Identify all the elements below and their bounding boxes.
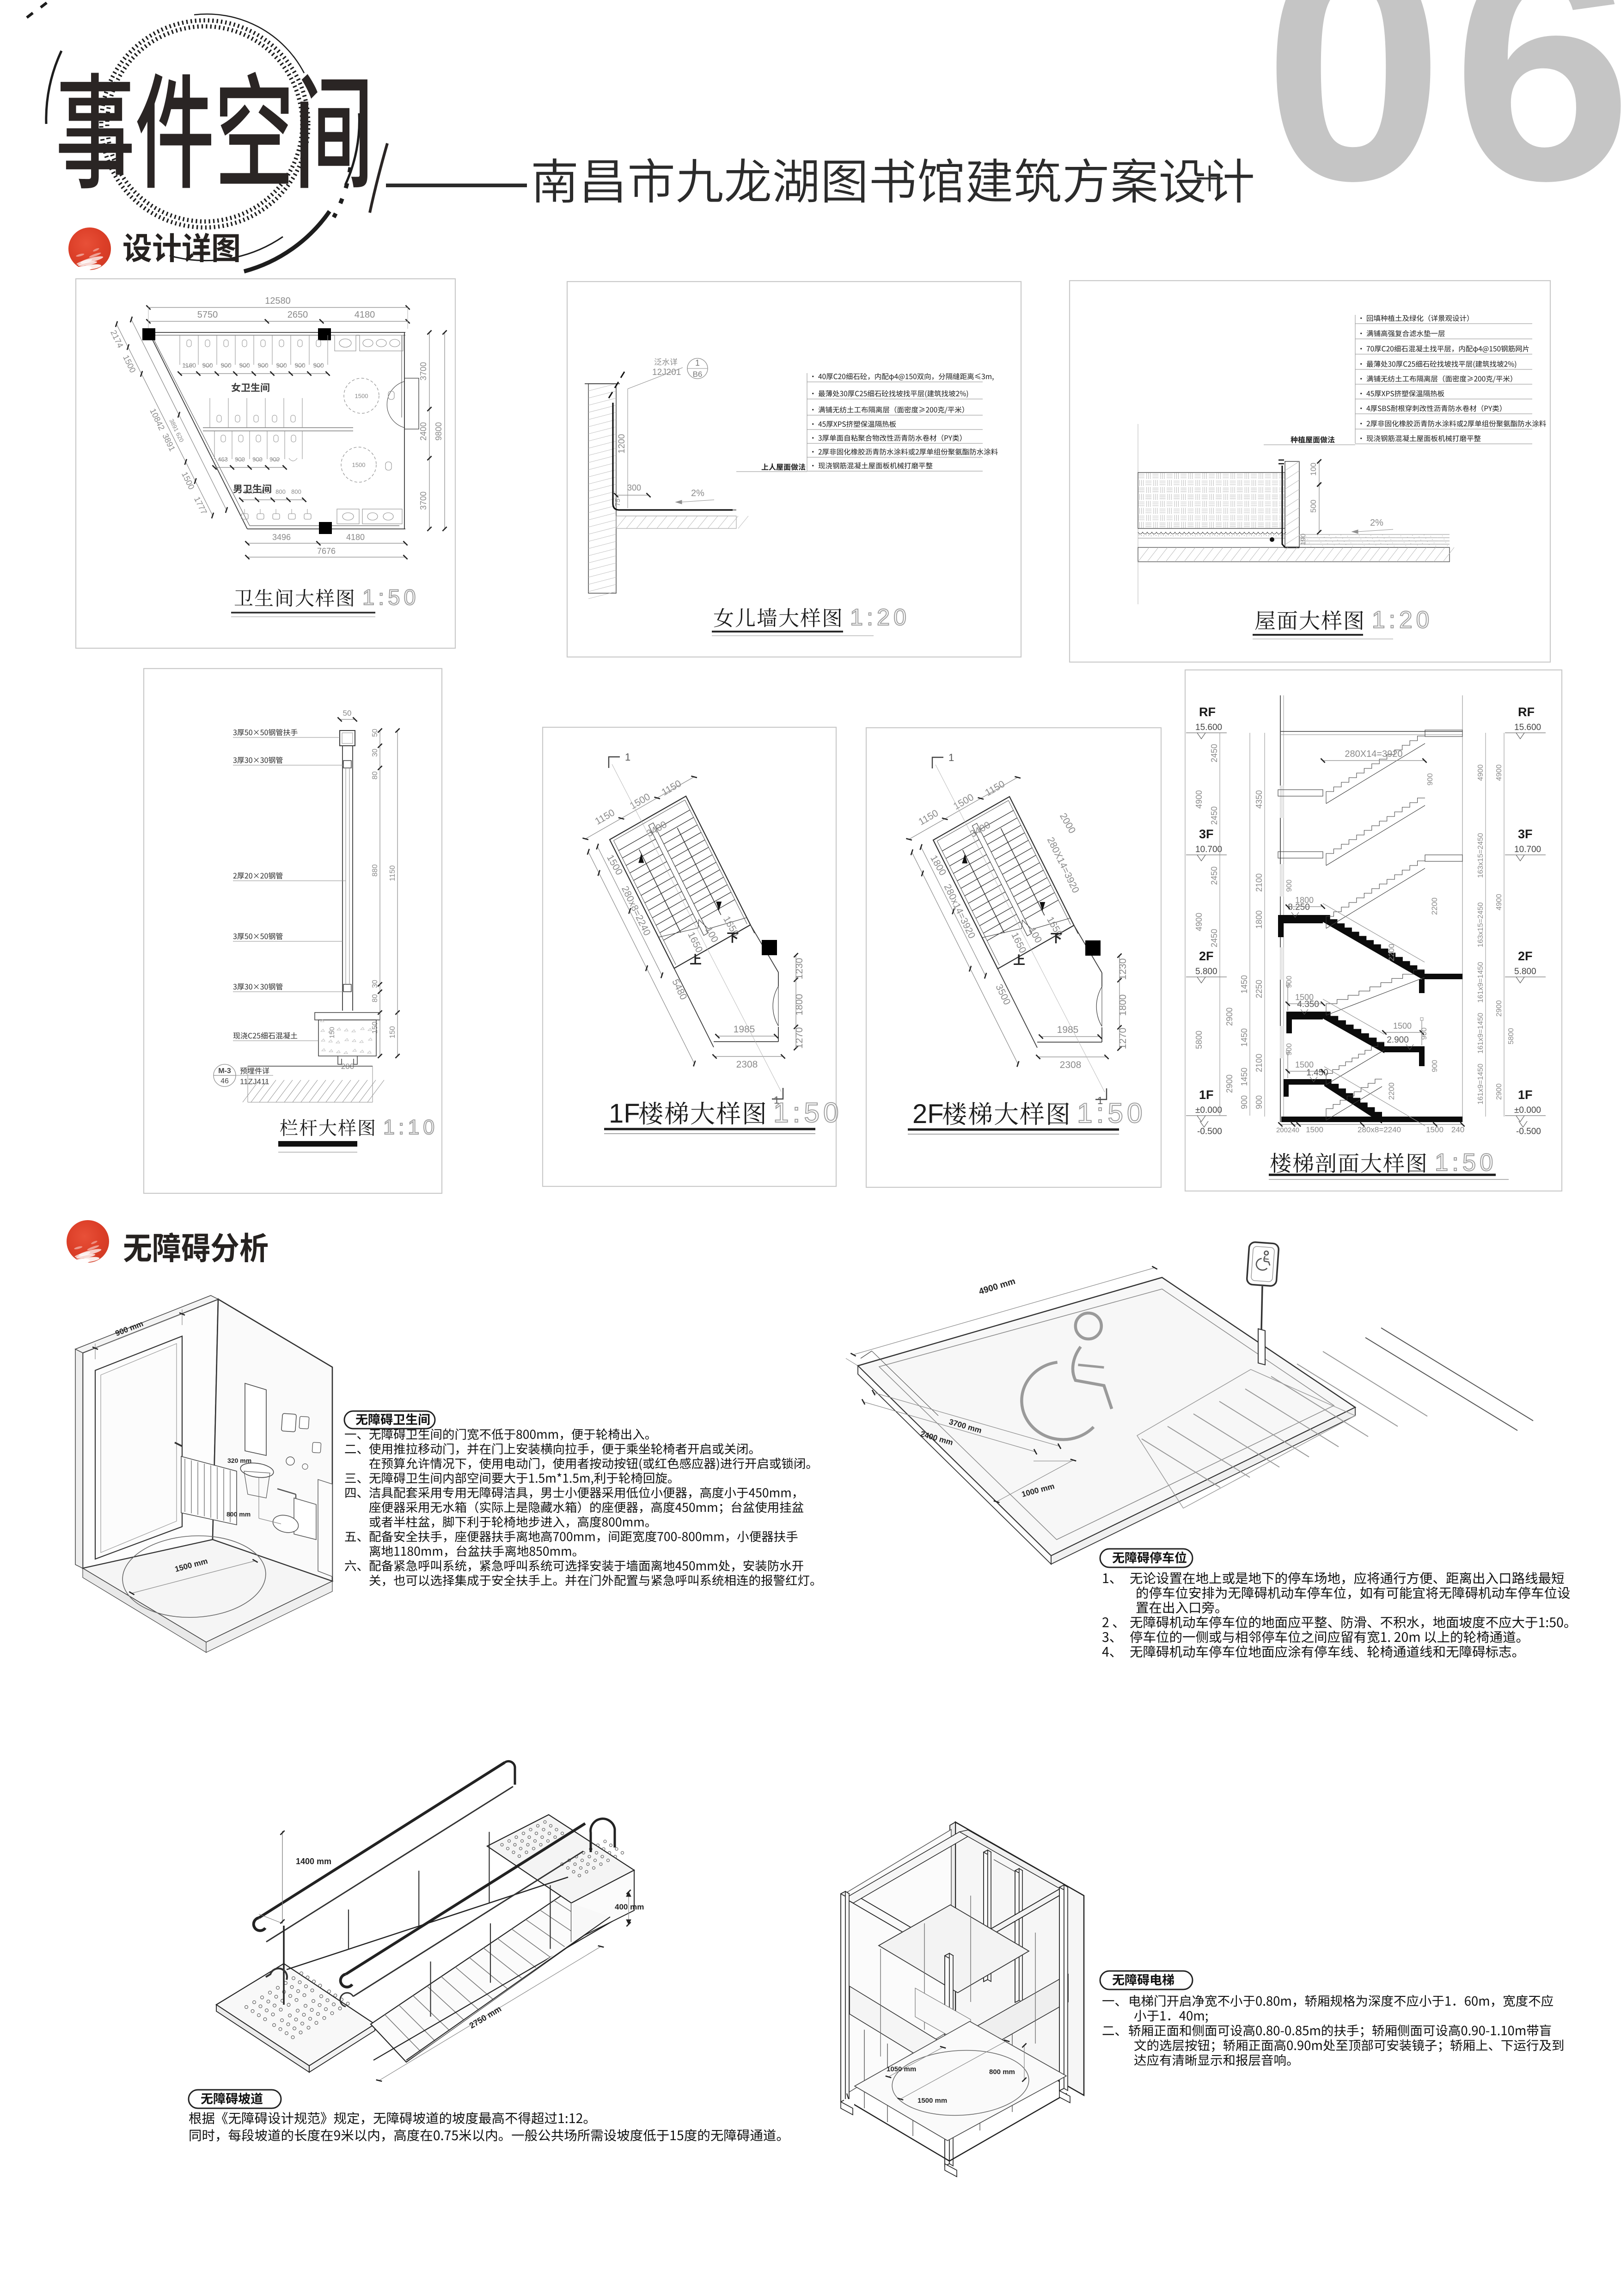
svg-text:46: 46	[220, 1077, 229, 1085]
svg-text:1: 1	[948, 752, 954, 763]
svg-text:1500: 1500	[952, 792, 976, 812]
svg-text:1:50: 1:50	[1435, 1149, 1497, 1176]
svg-text:06: 06	[1264, 0, 1621, 248]
svg-text:5800: 5800	[1507, 1028, 1515, 1044]
svg-text:2450: 2450	[1210, 806, 1219, 825]
svg-text:1500: 1500	[352, 461, 366, 468]
svg-text:1270: 1270	[794, 1027, 805, 1049]
svg-text:2%: 2%	[691, 488, 704, 498]
svg-text:280x14=3920: 280x14=3920	[942, 883, 977, 940]
svg-text:80: 80	[371, 771, 379, 780]
svg-text:2F: 2F	[912, 1099, 944, 1129]
svg-text:50: 50	[343, 709, 352, 718]
svg-text:4900: 4900	[1194, 790, 1204, 809]
svg-text:800: 800	[291, 488, 301, 495]
svg-text:163x15=2450: 163x15=2450	[1477, 902, 1485, 947]
svg-text:163x15=2450: 163x15=2450	[1477, 833, 1485, 878]
svg-text:1:10: 1:10	[383, 1116, 438, 1139]
svg-text:2174: 2174	[109, 329, 125, 350]
svg-text:900: 900	[239, 362, 250, 369]
svg-text:463: 463	[218, 456, 228, 463]
svg-text:900: 900	[1420, 1027, 1428, 1040]
svg-text:2000: 2000	[1058, 811, 1077, 835]
svg-text:150: 150	[389, 1026, 397, 1038]
svg-text:12J201: 12J201	[652, 368, 681, 377]
svg-text:1270: 1270	[1118, 1028, 1128, 1050]
svg-text:800: 800	[275, 488, 286, 495]
svg-text:2%: 2%	[1370, 518, 1383, 528]
svg-text:161x9=1450: 161x9=1450	[1477, 1013, 1485, 1054]
svg-text:900: 900	[269, 456, 280, 463]
svg-text:1450: 1450	[1240, 1028, 1249, 1047]
svg-text:RF: RF	[1199, 705, 1216, 719]
svg-text:2F: 2F	[1518, 949, 1533, 963]
svg-text:15.600: 15.600	[1195, 723, 1222, 732]
svg-text:400 mm: 400 mm	[615, 1903, 644, 1911]
svg-text:1:20: 1:20	[1372, 606, 1433, 633]
svg-text:±0.000: ±0.000	[1195, 1105, 1222, 1115]
svg-text:800 mm: 800 mm	[989, 2068, 1015, 2076]
svg-text:4900: 4900	[1477, 764, 1485, 781]
svg-text:12580: 12580	[265, 296, 291, 306]
svg-text:900: 900	[1285, 879, 1293, 892]
svg-text:1500: 1500	[355, 393, 368, 399]
svg-text:1650: 1650	[1009, 931, 1028, 955]
svg-text:1777: 1777	[192, 495, 209, 516]
svg-text:900: 900	[257, 362, 269, 369]
svg-text:-0.500: -0.500	[1516, 1127, 1541, 1136]
svg-text:1230: 1230	[1118, 958, 1128, 980]
svg-text:900: 900	[235, 456, 245, 463]
svg-text:1500: 1500	[1306, 1125, 1323, 1134]
svg-text:320 mm: 320 mm	[227, 1457, 251, 1464]
svg-text:240: 240	[1451, 1125, 1464, 1134]
svg-text:900: 900	[1426, 773, 1434, 786]
svg-text:200240: 200240	[1276, 1126, 1299, 1134]
svg-text:280X14=3920: 280X14=3920	[1345, 749, 1402, 759]
svg-text:1400 mm: 1400 mm	[296, 1857, 331, 1866]
svg-text:5750: 5750	[197, 310, 218, 320]
svg-text:1500: 1500	[180, 470, 196, 491]
svg-text:2250: 2250	[1254, 980, 1264, 998]
svg-text:500: 500	[1309, 500, 1318, 513]
svg-text:2450: 2450	[1210, 744, 1219, 762]
svg-text:2200: 2200	[1430, 897, 1439, 915]
svg-text:2308: 2308	[736, 1059, 758, 1070]
svg-text:1F: 1F	[609, 1099, 640, 1129]
svg-text:1150: 1150	[660, 778, 683, 798]
svg-text:2900: 2900	[1495, 1000, 1503, 1017]
svg-text:3F: 3F	[1518, 827, 1533, 841]
svg-text:900: 900	[202, 362, 213, 369]
svg-text:M-3: M-3	[218, 1067, 231, 1075]
svg-text:RF: RF	[1518, 705, 1535, 719]
svg-text:2308: 2308	[1060, 1060, 1082, 1070]
svg-text:2900: 2900	[1225, 1007, 1234, 1026]
svg-text:3891: 3891	[160, 432, 177, 453]
svg-text:1:50: 1:50	[773, 1097, 843, 1128]
svg-text:1150: 1150	[917, 808, 940, 828]
svg-text:30: 30	[371, 980, 379, 988]
svg-text:5.800: 5.800	[1195, 967, 1217, 976]
svg-text:900: 900	[313, 362, 324, 369]
svg-text:1800: 1800	[1118, 995, 1128, 1016]
svg-text:1800: 1800	[1254, 910, 1264, 929]
svg-text:4900: 4900	[1194, 913, 1204, 931]
svg-text:900: 900	[1285, 976, 1293, 988]
svg-text:190: 190	[1299, 534, 1307, 545]
svg-text:1450: 1450	[1240, 975, 1249, 994]
svg-text:4180: 4180	[346, 533, 365, 542]
svg-text:1650: 1650	[685, 930, 704, 954]
svg-text:10.700: 10.700	[1514, 845, 1541, 854]
svg-text:4350: 4350	[1254, 790, 1264, 809]
svg-text:1F: 1F	[1518, 1088, 1533, 1102]
svg-text:2100: 2100	[1254, 1054, 1264, 1072]
svg-text:1500: 1500	[1295, 1060, 1314, 1069]
svg-text:1:50: 1:50	[362, 585, 420, 609]
svg-text:900: 900	[276, 362, 287, 369]
svg-text:5800: 5800	[1194, 1031, 1204, 1049]
svg-text:1150: 1150	[983, 779, 1007, 798]
svg-text:900: 900	[1285, 1043, 1293, 1056]
svg-text:900: 900	[294, 362, 306, 369]
svg-text:10.700: 10.700	[1195, 845, 1222, 854]
svg-text:1650: 1650	[1045, 915, 1064, 939]
svg-text:50: 50	[371, 729, 379, 737]
svg-text:B6: B6	[693, 370, 703, 379]
svg-text:1160: 1160	[182, 362, 196, 369]
svg-text:2900: 2900	[1495, 1083, 1503, 1100]
svg-text:15.600: 15.600	[1514, 723, 1541, 732]
svg-text:1500: 1500	[1426, 1125, 1444, 1134]
svg-text:11ZJ411: 11ZJ411	[240, 1077, 269, 1086]
svg-text:1500: 1500	[121, 354, 138, 374]
svg-text:1985: 1985	[1057, 1025, 1079, 1035]
svg-text:3700: 3700	[419, 362, 428, 381]
svg-text:-0.500: -0.500	[1197, 1127, 1222, 1136]
svg-text:1650: 1650	[721, 915, 741, 939]
svg-text:5.800: 5.800	[1514, 967, 1536, 976]
svg-text:1500: 1500	[1295, 993, 1314, 1002]
svg-text:1:20: 1:20	[850, 604, 910, 630]
svg-text:800 mm: 800 mm	[226, 1510, 251, 1518]
svg-text:2400: 2400	[419, 422, 428, 441]
svg-text:2450: 2450	[1210, 929, 1219, 947]
svg-text:1:50: 1:50	[1077, 1097, 1146, 1129]
svg-text:2.900: 2.900	[1387, 1035, 1409, 1045]
svg-text:900: 900	[1254, 1095, 1264, 1109]
svg-text:1150: 1150	[593, 807, 617, 827]
svg-text:4900 mm: 4900 mm	[978, 1277, 1016, 1297]
svg-text:2F: 2F	[1199, 949, 1214, 963]
svg-text:100: 100	[1309, 463, 1318, 476]
svg-text:3F: 3F	[1199, 827, 1214, 841]
svg-text:1500: 1500	[628, 792, 652, 811]
svg-text:900: 900	[252, 456, 263, 463]
svg-text:80: 80	[371, 994, 379, 1002]
svg-text:9800: 9800	[434, 422, 443, 441]
svg-text:3496: 3496	[272, 533, 291, 542]
svg-text:1450: 1450	[1240, 1068, 1249, 1086]
svg-text:2650: 2650	[287, 310, 308, 320]
svg-text:4900: 4900	[1495, 764, 1503, 781]
svg-text:2100: 2100	[1254, 873, 1264, 892]
svg-text:1: 1	[695, 358, 700, 368]
svg-text:2450: 2450	[1210, 866, 1219, 885]
svg-text:5480: 5480	[670, 977, 689, 1001]
svg-text:280X14=3920: 280X14=3920	[1045, 835, 1081, 895]
svg-text:280x8=2240: 280x8=2240	[1358, 1125, 1401, 1134]
svg-text:10842: 10842	[148, 407, 166, 432]
svg-text:3500: 3500	[993, 982, 1012, 1007]
svg-text:900: 900	[1240, 1095, 1249, 1109]
svg-text:75: 75	[614, 498, 622, 506]
svg-text:900: 900	[220, 362, 232, 369]
svg-text:1230: 1230	[794, 958, 805, 980]
svg-text:1800: 1800	[794, 994, 805, 1016]
svg-text:1F: 1F	[1199, 1088, 1214, 1102]
svg-text:30: 30	[371, 749, 379, 757]
svg-text:1985: 1985	[734, 1024, 755, 1035]
svg-text:900: 900	[1431, 1060, 1439, 1072]
svg-text:880: 880	[371, 864, 379, 877]
svg-text:150: 150	[371, 1021, 379, 1034]
svg-text:4900: 4900	[1495, 894, 1503, 910]
svg-text:1050 mm: 1050 mm	[887, 2065, 916, 2073]
svg-text:2200: 2200	[1387, 944, 1396, 961]
svg-text:1800: 1800	[1295, 896, 1314, 905]
svg-text:2200: 2200	[1387, 1082, 1396, 1100]
svg-text:161x9=1450: 161x9=1450	[1477, 1063, 1485, 1105]
svg-text:1: 1	[625, 751, 630, 763]
svg-text:7676: 7676	[317, 546, 336, 556]
svg-text:1200: 1200	[617, 434, 627, 454]
svg-text:1500 mm: 1500 mm	[918, 2097, 947, 2105]
svg-text:1150: 1150	[389, 865, 397, 881]
svg-text:150: 150	[328, 1027, 336, 1038]
svg-text:±0.000: ±0.000	[1514, 1105, 1541, 1115]
svg-text:3700: 3700	[419, 491, 428, 510]
svg-text:161x9=1450: 161x9=1450	[1477, 962, 1485, 1003]
svg-text:4180: 4180	[355, 310, 375, 320]
svg-text:2900: 2900	[1225, 1074, 1234, 1093]
svg-text:1500: 1500	[1393, 1021, 1412, 1031]
svg-text:300: 300	[627, 483, 641, 492]
